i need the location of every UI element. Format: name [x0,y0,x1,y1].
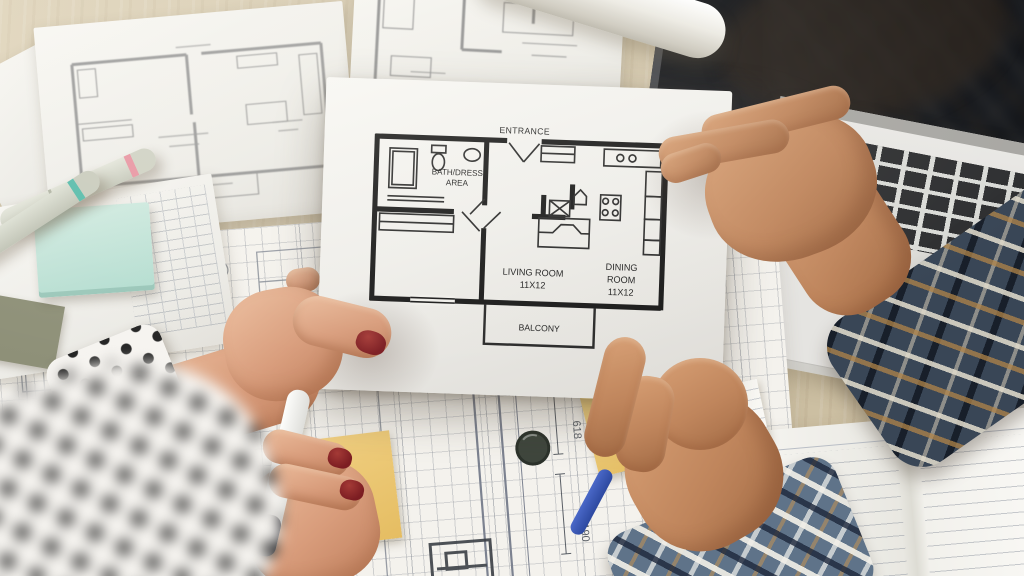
blueprint-dimension-top: 618 [570,420,583,439]
label-living-line2: 11X12 [520,280,546,291]
label-bath-line2: AREA [446,178,469,188]
label-dining-line2: ROOM [607,274,636,285]
label-entrance: ENTRANCE [499,125,550,137]
label-bath-line1: BATH/DRESS [432,167,484,178]
label-dining-line1: DINING [605,262,637,273]
label-living-line1: LIVING ROOM [502,267,563,279]
photo-scene: 618 4,190 [0,0,1024,576]
blueprint-grommet [516,431,550,465]
label-balcony: BALCONY [518,322,560,334]
label-dining-line3: 11X12 [608,287,634,298]
